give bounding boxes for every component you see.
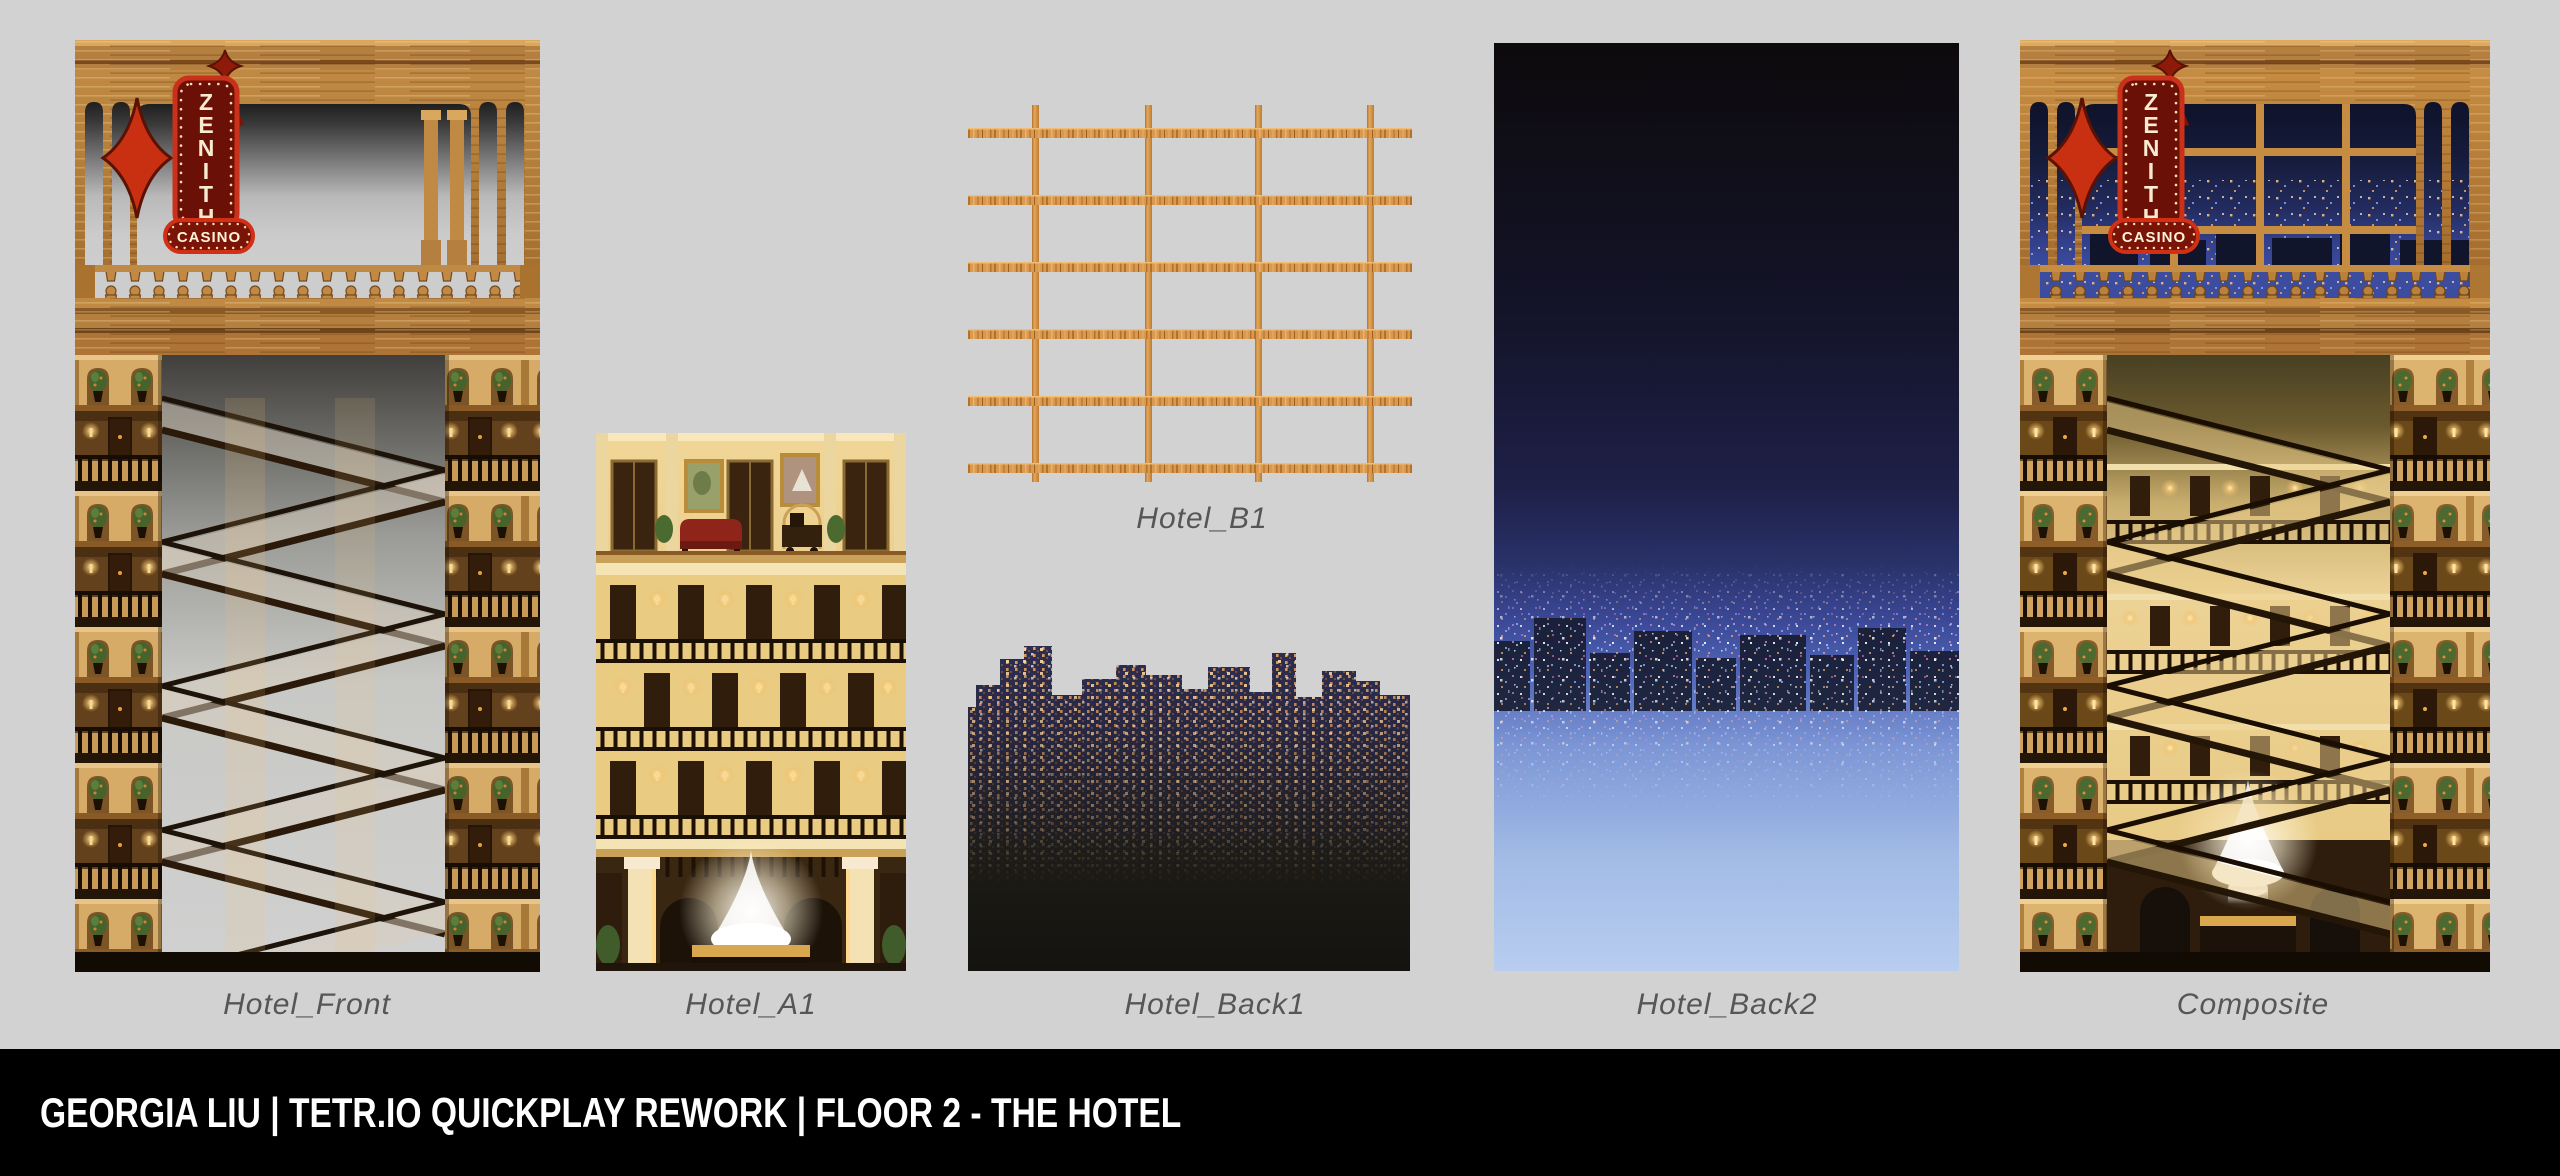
panel-label-hotel-b1: Hotel_B1	[1022, 502, 1382, 536]
panel-hotel-a1	[596, 433, 906, 971]
atrium-interior	[2107, 355, 2390, 952]
panel-hotel-front: Z E N I T H CASINO	[75, 40, 540, 972]
panel-label-hotel-front: Hotel_Front	[127, 988, 487, 1022]
plant	[882, 925, 906, 965]
hotel-front-art: Z E N I T H CASINO	[75, 40, 540, 972]
floor-bar	[2020, 952, 2490, 972]
city-skyline-art	[968, 645, 1410, 971]
window-grid-art	[968, 105, 1412, 482]
panel-hotel-back2	[1494, 43, 1959, 971]
panel-label-composite: Composite	[2073, 988, 2433, 1022]
city-lights-band	[1494, 563, 1959, 813]
composite-art: Z E N I T H CASINO	[2020, 40, 2490, 972]
painting	[780, 453, 820, 507]
credit-text: GEORGIA LIU | TETR.IO QUICKPLAY REWORK |…	[40, 1049, 1181, 1176]
plant	[596, 925, 620, 965]
asset-sheet-page: Z E N I T H CASINO	[0, 0, 2560, 1176]
panel-hotel-back1	[968, 645, 1410, 971]
panel-label-hotel-back1: Hotel_Back1	[1035, 988, 1395, 1022]
hotel-a1-art	[596, 433, 906, 971]
panel-label-hotel-a1: Hotel_A1	[571, 988, 931, 1022]
floor-bar	[75, 952, 540, 972]
beams	[75, 298, 540, 355]
panel-hotel-b1	[968, 105, 1412, 482]
night-sky-art	[1494, 43, 1959, 971]
plant	[655, 515, 673, 543]
lobby	[596, 839, 906, 971]
plant	[827, 515, 845, 543]
panel-label-hotel-back2: Hotel_Back2	[1547, 988, 1907, 1022]
arcade-openings	[85, 102, 524, 272]
corridor-floors	[596, 575, 906, 839]
sign-casino-text: CASINO	[177, 229, 241, 246]
sign-casino-text: CASINO	[2122, 229, 2186, 246]
beams	[2020, 298, 2490, 355]
credit-bar: GEORGIA LIU | TETR.IO QUICKPLAY REWORK |…	[0, 1049, 2560, 1176]
vertical-bars	[1032, 105, 1374, 482]
painting	[684, 459, 724, 513]
panel-composite: Z E N I T H CASINO	[2020, 40, 2490, 972]
